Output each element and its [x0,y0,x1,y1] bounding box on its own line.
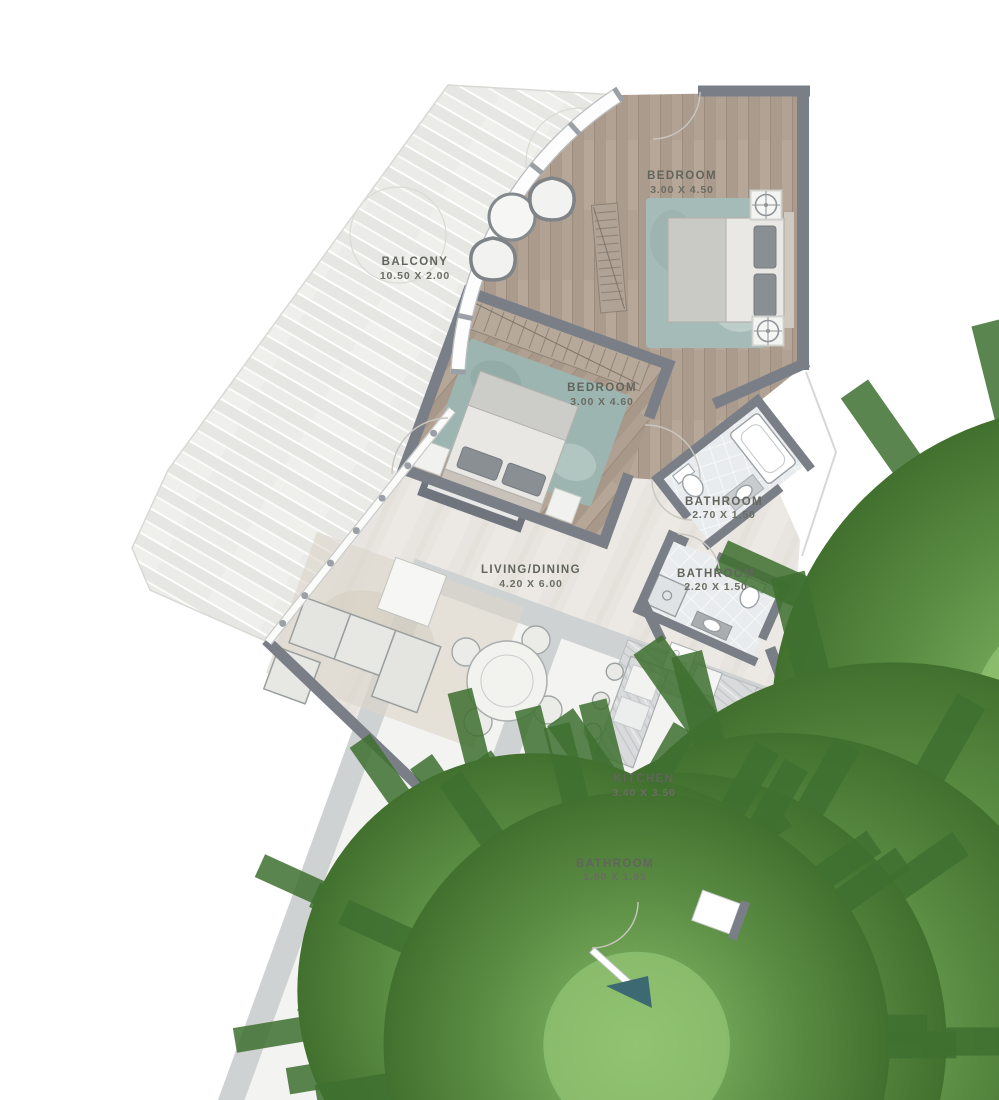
label-bedroom-2-dims: 3.00 X 4.60 [570,396,634,408]
downlight-icon [751,191,781,219]
label-kitchen-name: KITCHEN [614,773,675,785]
downlight-icon [753,317,783,345]
label-living-dims: 4.20 X 6.00 [499,578,563,590]
label-bedroom-1-dims: 3.00 X 4.50 [650,184,714,196]
label-bathroom-1-dims: 2.70 X 1.50 [692,509,756,521]
label-bathroom-3-dims: 1.80 X 1.65 [583,871,647,883]
floor-plan-canvas: BALCONY 10.50 X 2.00 BEDROOM 3.00 X 4.50… [0,0,999,1100]
label-balcony-dims: 10.50 X 2.00 [380,270,450,282]
label-bathroom-2-name: BATHROOM [677,568,755,580]
floor-plan-svg: BALCONY 10.50 X 2.00 BEDROOM 3.00 X 4.50… [0,0,999,1100]
label-bedroom-2-name: BEDROOM [567,382,637,394]
petal-chair [471,238,515,280]
label-bedroom-1-name: BEDROOM [647,170,717,182]
label-bathroom-1-name: BATHROOM [685,496,763,508]
round-chair [489,194,535,240]
label-bathroom-3-name: BATHROOM [576,858,654,870]
label-living-name: LIVING/DINING [481,564,581,576]
label-balcony-name: BALCONY [382,256,449,268]
petal-chair [530,178,574,220]
label-kitchen-dims: 3.40 X 3.50 [612,787,676,799]
bed [668,212,794,328]
label-bathroom-2-dims: 2.20 X 1.50 [684,581,748,593]
